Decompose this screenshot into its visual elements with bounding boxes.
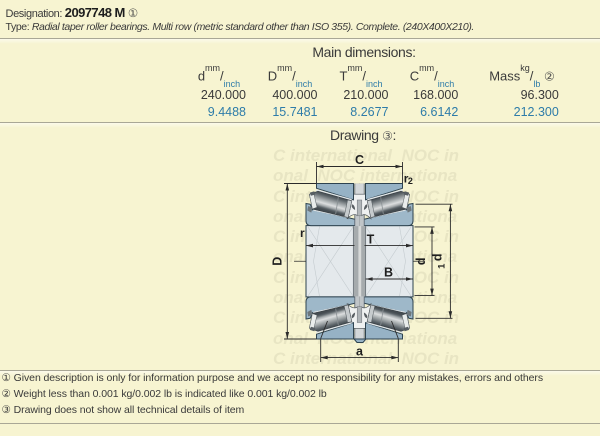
svg-text:B: B [384,266,393,280]
svg-text:d: d [414,257,428,265]
svg-text:d: d [431,253,445,261]
svg-text:C: C [355,153,364,167]
svg-text:r: r [300,226,305,240]
svg-text:1: 1 [437,263,448,269]
svg-text:T: T [367,233,375,247]
svg-text:2: 2 [408,176,413,186]
svg-text:a: a [356,345,364,359]
svg-text:D: D [271,257,285,266]
